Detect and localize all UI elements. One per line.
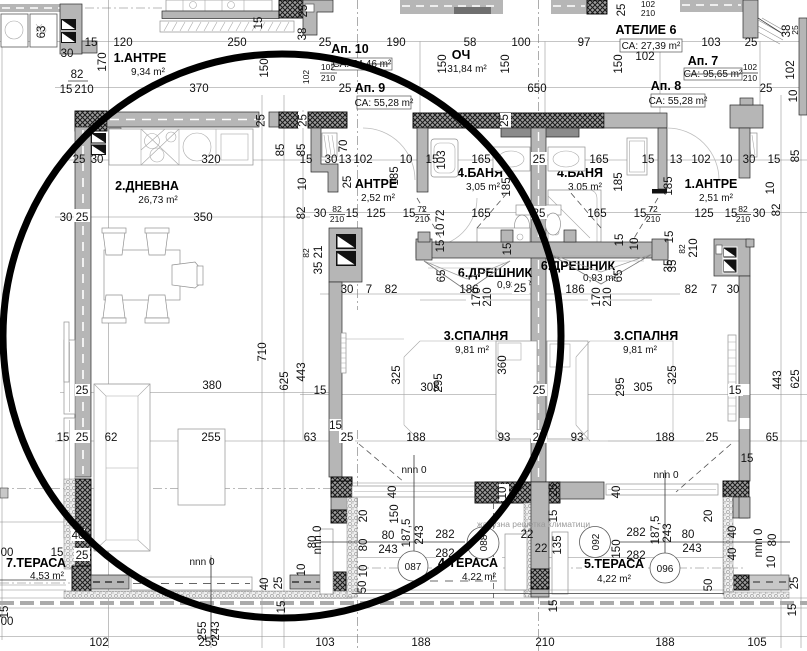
svg-text:625: 625 <box>790 369 802 388</box>
svg-text:АТЕЛИЕ 6: АТЕЛИЕ 6 <box>616 23 677 37</box>
svg-text:650: 650 <box>527 83 546 95</box>
svg-text:102: 102 <box>635 51 654 63</box>
svg-text:22: 22 <box>521 529 534 541</box>
svg-text:15: 15 <box>57 432 70 444</box>
svg-text:125: 125 <box>366 208 385 220</box>
svg-text:25: 25 <box>533 385 546 397</box>
svg-text:15: 15 <box>634 208 647 220</box>
svg-text:4,22 m²: 4,22 m² <box>597 574 632 585</box>
svg-text:185: 185 <box>613 172 625 191</box>
svg-text:15: 15 <box>768 154 781 166</box>
svg-text:38: 38 <box>781 25 793 38</box>
svg-text:20: 20 <box>358 510 370 523</box>
svg-text:10: 10 <box>400 154 413 166</box>
svg-text:15: 15 <box>787 604 799 617</box>
svg-text:26,73 m²: 26,73 m² <box>138 195 178 206</box>
svg-text:185: 185 <box>389 166 401 185</box>
svg-text:087: 087 <box>405 562 422 573</box>
svg-text:150: 150 <box>437 54 449 73</box>
svg-text:210: 210 <box>736 214 750 224</box>
svg-text:25: 25 <box>76 212 89 224</box>
svg-text:15: 15 <box>548 600 560 613</box>
svg-text:165: 165 <box>589 154 608 166</box>
svg-text:100: 100 <box>511 37 530 49</box>
svg-text:102: 102 <box>321 62 335 72</box>
svg-text:250: 250 <box>227 37 246 49</box>
svg-text:165: 165 <box>587 208 606 220</box>
svg-text:25: 25 <box>256 114 268 127</box>
svg-text:102: 102 <box>89 637 108 649</box>
svg-text:70: 70 <box>338 140 350 153</box>
svg-text:25: 25 <box>319 37 332 49</box>
svg-text:210: 210 <box>321 73 335 83</box>
svg-text:82: 82 <box>296 207 308 220</box>
svg-text:25: 25 <box>533 154 546 166</box>
svg-text:360: 360 <box>497 355 509 374</box>
svg-text:25: 25 <box>273 577 285 590</box>
svg-text:СА: 55,28 m²: СА: 55,28 m² <box>355 98 414 109</box>
svg-text:188: 188 <box>406 432 425 444</box>
svg-text:1.АНТРЕ: 1.АНТРЕ <box>114 51 167 65</box>
svg-text:nnn 0: nnn 0 <box>312 526 324 555</box>
svg-text:15: 15 <box>741 453 754 465</box>
svg-text:nnn 0: nnn 0 <box>653 470 678 481</box>
svg-text:15: 15 <box>60 84 73 96</box>
svg-text:62: 62 <box>105 432 118 444</box>
svg-text:7: 7 <box>711 284 717 296</box>
svg-text:15: 15 <box>314 385 327 397</box>
svg-text:443: 443 <box>772 370 784 389</box>
svg-text:625: 625 <box>279 371 291 390</box>
svg-text:72: 72 <box>435 210 447 223</box>
svg-text:325: 325 <box>667 365 679 384</box>
svg-text:65: 65 <box>766 432 779 444</box>
svg-text:255: 255 <box>198 637 217 649</box>
svg-text:38: 38 <box>297 28 309 41</box>
svg-text:80: 80 <box>358 539 370 552</box>
svg-text:4,22 m²: 4,22 m² <box>462 572 497 583</box>
svg-text:10: 10 <box>296 564 308 577</box>
svg-text:25: 25 <box>789 577 801 590</box>
svg-text:103: 103 <box>436 150 448 169</box>
svg-text:50: 50 <box>357 581 369 594</box>
svg-text:10: 10 <box>766 556 778 569</box>
svg-text:210: 210 <box>74 84 93 96</box>
svg-text:15: 15 <box>403 208 416 220</box>
svg-text:282: 282 <box>626 527 645 539</box>
svg-text:15: 15 <box>729 385 742 397</box>
svg-text:102: 102 <box>785 60 797 79</box>
svg-text:2,51 m²: 2,51 m² <box>699 193 734 204</box>
svg-text:443: 443 <box>296 362 308 381</box>
svg-text:243: 243 <box>682 543 701 555</box>
svg-text:102: 102 <box>301 70 311 84</box>
svg-text:82: 82 <box>738 204 748 214</box>
svg-text:82: 82 <box>385 284 398 296</box>
svg-text:188: 188 <box>411 637 430 649</box>
svg-text:30: 30 <box>753 208 766 220</box>
svg-text:35: 35 <box>313 262 325 275</box>
svg-text:165: 165 <box>471 208 490 220</box>
svg-text:82: 82 <box>71 69 84 81</box>
svg-text:ОЧ: ОЧ <box>452 48 471 62</box>
svg-text:30: 30 <box>743 154 756 166</box>
svg-text:97: 97 <box>578 37 591 49</box>
svg-text:СА: 55,28 m²: СА: 55,28 m² <box>649 96 708 107</box>
svg-text:nnn 0: nnn 0 <box>189 557 214 568</box>
svg-text:2,52 m²: 2,52 m² <box>361 193 396 204</box>
svg-text:243: 243 <box>378 544 397 556</box>
svg-text:40: 40 <box>387 486 399 499</box>
svg-text:15: 15 <box>85 37 98 49</box>
svg-text:Ап. 10: Ап. 10 <box>331 42 368 56</box>
svg-text:186: 186 <box>565 284 584 296</box>
svg-text:210: 210 <box>743 73 757 83</box>
svg-text:15: 15 <box>276 601 288 614</box>
svg-text:40: 40 <box>259 578 271 591</box>
svg-text:85: 85 <box>275 144 287 157</box>
svg-text:150: 150 <box>613 54 625 73</box>
svg-text:25: 25 <box>616 4 628 17</box>
svg-text:320: 320 <box>201 154 220 166</box>
svg-text:092: 092 <box>591 533 602 550</box>
svg-text:190: 190 <box>386 37 405 49</box>
svg-text:25: 25 <box>745 37 758 49</box>
svg-text:370: 370 <box>189 83 208 95</box>
svg-text:325: 325 <box>391 365 403 384</box>
svg-text:65: 65 <box>613 270 625 283</box>
svg-text:85: 85 <box>790 150 802 163</box>
svg-text:105: 105 <box>747 637 766 649</box>
svg-text:25: 25 <box>760 83 773 95</box>
svg-text:25: 25 <box>298 5 310 18</box>
svg-text:15: 15 <box>664 231 676 244</box>
svg-text:150: 150 <box>389 504 401 523</box>
svg-text:120: 120 <box>113 37 132 49</box>
svg-text:82: 82 <box>332 204 342 214</box>
svg-text:00: 00 <box>1 547 14 559</box>
svg-text:50: 50 <box>703 579 715 592</box>
svg-text:63: 63 <box>304 432 317 444</box>
svg-text:Ап. 8: Ап. 8 <box>651 79 682 93</box>
svg-text:25: 25 <box>76 550 89 562</box>
svg-text:188: 188 <box>655 637 674 649</box>
svg-text:82: 82 <box>685 284 698 296</box>
svg-text:15: 15 <box>253 17 265 30</box>
svg-text:15: 15 <box>548 510 560 523</box>
svg-text:210: 210 <box>330 214 344 224</box>
svg-text:15: 15 <box>0 606 11 619</box>
svg-text:096: 096 <box>657 564 674 575</box>
svg-text:255: 255 <box>201 432 220 444</box>
svg-text:93: 93 <box>571 432 584 444</box>
svg-text:4,53 m²: 4,53 m² <box>30 571 65 582</box>
svg-text:65: 65 <box>436 270 448 283</box>
svg-text:31,84 m²: 31,84 m² <box>447 64 487 75</box>
svg-text:2.ДНЕВНА: 2.ДНЕВНА <box>115 179 179 193</box>
svg-text:10: 10 <box>629 238 641 251</box>
svg-text:13: 13 <box>339 154 352 166</box>
svg-text:20: 20 <box>703 510 715 523</box>
svg-text:35: 35 <box>663 260 675 273</box>
svg-text:10: 10 <box>765 182 777 195</box>
svg-text:15: 15 <box>51 547 64 559</box>
svg-text:10: 10 <box>788 90 800 103</box>
svg-text:9,81 m²: 9,81 m² <box>455 345 490 356</box>
svg-text:82: 82 <box>677 244 687 254</box>
svg-text:305: 305 <box>633 382 652 394</box>
svg-text:15: 15 <box>614 234 626 247</box>
svg-text:102: 102 <box>353 154 372 166</box>
svg-text:185: 185 <box>663 176 675 195</box>
svg-text:58: 58 <box>464 37 477 49</box>
svg-text:nnn 0: nnn 0 <box>753 529 765 558</box>
svg-text:80: 80 <box>767 534 779 547</box>
svg-text:Ап. 9: Ап. 9 <box>355 81 386 95</box>
svg-text:10: 10 <box>297 178 309 191</box>
svg-text:72: 72 <box>417 204 427 214</box>
svg-text:93: 93 <box>498 432 511 444</box>
svg-text:10: 10 <box>435 224 447 237</box>
svg-text:9,34 m²: 9,34 m² <box>131 67 166 78</box>
svg-text:80: 80 <box>682 529 695 541</box>
svg-text:150: 150 <box>259 58 271 77</box>
svg-text:15: 15 <box>346 208 359 220</box>
svg-text:15: 15 <box>435 240 447 253</box>
svg-text:1.АНТРЕ: 1.АНТРЕ <box>685 177 738 191</box>
svg-text:40: 40 <box>727 526 739 539</box>
svg-text:3,05 m²: 3,05 m² <box>466 182 501 193</box>
svg-text:710: 710 <box>257 342 269 361</box>
svg-text:30: 30 <box>60 212 73 224</box>
svg-text:25: 25 <box>548 484 560 497</box>
svg-text:188: 188 <box>655 432 674 444</box>
svg-text:30: 30 <box>61 48 74 60</box>
svg-text:243: 243 <box>662 523 674 542</box>
svg-text:9,81 m²: 9,81 m² <box>623 345 658 356</box>
svg-text:25: 25 <box>73 154 86 166</box>
svg-text:25: 25 <box>706 432 719 444</box>
svg-text:80: 80 <box>382 530 395 542</box>
svg-text:295: 295 <box>615 377 627 396</box>
svg-text:85: 85 <box>296 144 308 157</box>
svg-text:186: 186 <box>459 284 478 296</box>
svg-text:135: 135 <box>552 535 564 554</box>
svg-text:25: 25 <box>514 283 527 295</box>
svg-text:30: 30 <box>727 284 740 296</box>
svg-text:25: 25 <box>499 114 511 127</box>
svg-text:82: 82 <box>301 248 311 258</box>
svg-text:25: 25 <box>342 176 354 189</box>
svg-text:150: 150 <box>611 539 623 558</box>
svg-text:72: 72 <box>648 204 658 214</box>
svg-text:25: 25 <box>339 83 352 95</box>
svg-text:103: 103 <box>701 37 720 49</box>
svg-text:10: 10 <box>720 154 733 166</box>
svg-text:30: 30 <box>91 154 104 166</box>
svg-text:210: 210 <box>602 287 614 306</box>
svg-text:165: 165 <box>471 154 490 166</box>
svg-text:30: 30 <box>341 284 354 296</box>
svg-text:350: 350 <box>193 212 212 224</box>
svg-text:103: 103 <box>315 637 334 649</box>
svg-text:210: 210 <box>415 214 429 224</box>
svg-text:63: 63 <box>36 26 48 39</box>
svg-text:170: 170 <box>97 52 109 71</box>
svg-text:243: 243 <box>414 525 426 544</box>
svg-text:210: 210 <box>646 214 660 224</box>
svg-text:40: 40 <box>727 548 739 561</box>
svg-text:nnn 0: nnn 0 <box>401 465 426 476</box>
svg-text:210: 210 <box>535 637 554 649</box>
svg-text:102: 102 <box>743 62 757 72</box>
svg-text:15: 15 <box>502 243 514 256</box>
svg-text:187,5: 187,5 <box>401 519 413 548</box>
svg-text:25: 25 <box>76 432 89 444</box>
svg-text:102: 102 <box>691 154 710 166</box>
svg-text:305: 305 <box>420 382 439 394</box>
svg-text:15: 15 <box>642 154 655 166</box>
svg-text:21: 21 <box>313 246 325 259</box>
svg-text:25: 25 <box>341 432 354 444</box>
svg-text:СА: 95,65 m²: СА: 95,65 m² <box>684 69 743 80</box>
svg-text:22: 22 <box>535 543 548 555</box>
svg-text:125: 125 <box>694 208 713 220</box>
svg-text:13: 13 <box>670 154 683 166</box>
svg-text:Ап. 7: Ап. 7 <box>688 54 719 68</box>
svg-text:210: 210 <box>641 8 655 18</box>
svg-text:40: 40 <box>611 486 623 499</box>
svg-text:380: 380 <box>202 380 221 392</box>
svg-text:25: 25 <box>76 385 89 397</box>
svg-text:10: 10 <box>358 565 370 578</box>
svg-text:187,5: 187,5 <box>650 516 662 545</box>
svg-text:210: 210 <box>688 238 700 257</box>
svg-text:282: 282 <box>626 550 645 562</box>
svg-text:30: 30 <box>314 208 327 220</box>
svg-text:82: 82 <box>771 204 783 217</box>
svg-text:210: 210 <box>482 287 494 306</box>
svg-text:150: 150 <box>500 54 512 73</box>
svg-text:282: 282 <box>435 529 454 541</box>
svg-text:30: 30 <box>325 154 338 166</box>
svg-text:7: 7 <box>366 284 372 296</box>
